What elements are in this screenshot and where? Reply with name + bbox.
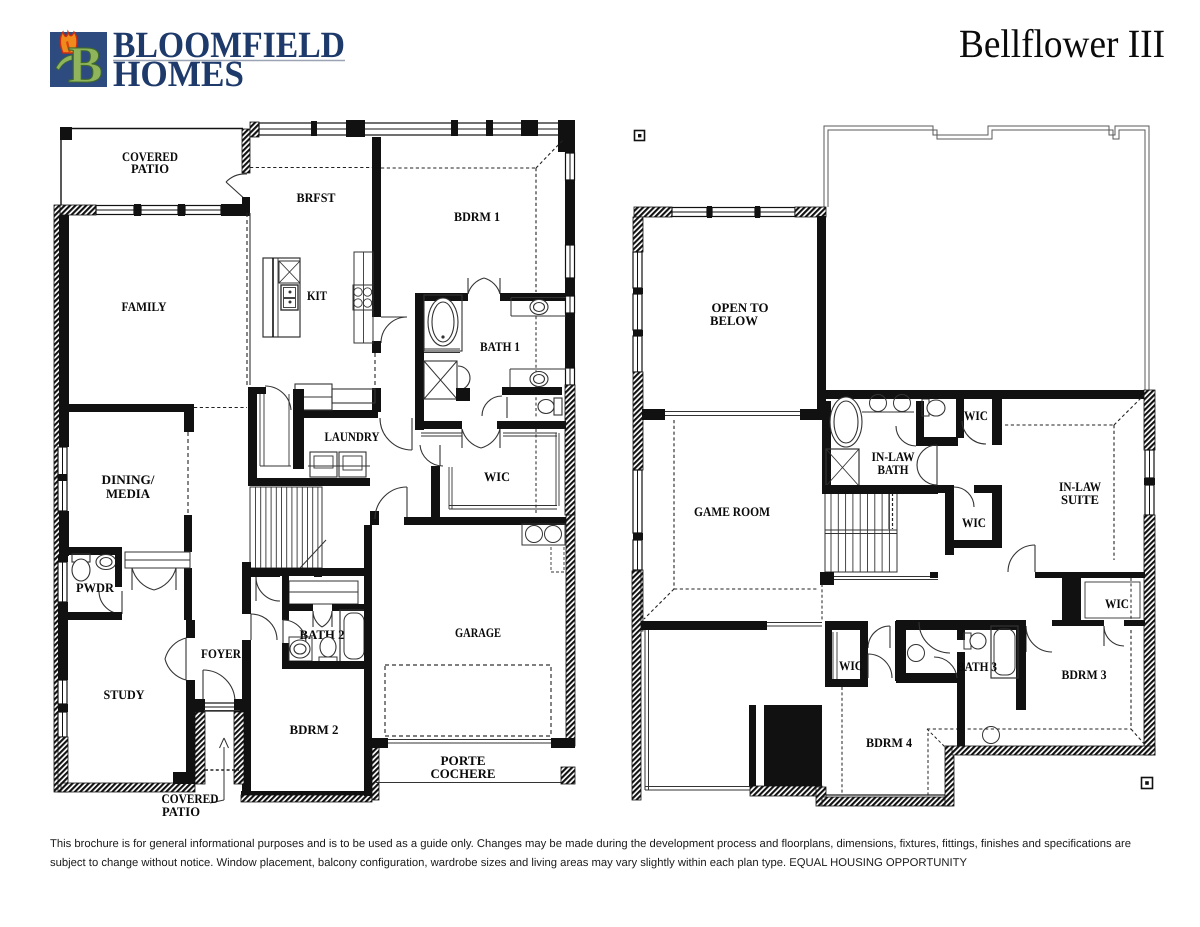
- svg-text:GARAGE: GARAGE: [455, 625, 501, 640]
- svg-text:BELOW: BELOW: [710, 313, 758, 328]
- svg-text:DINING/: DINING/: [102, 472, 155, 487]
- svg-text:subject to change without noti: subject to change without notice. Window…: [50, 857, 967, 869]
- svg-text:BATH 3: BATH 3: [957, 659, 997, 674]
- svg-text:BRFST: BRFST: [297, 190, 336, 205]
- svg-text:PWDR: PWDR: [76, 580, 115, 595]
- svg-text:WIC: WIC: [839, 658, 863, 673]
- svg-text:PATIO: PATIO: [131, 161, 169, 176]
- svg-text:SUITE: SUITE: [1061, 492, 1099, 507]
- svg-text:WIC: WIC: [962, 515, 986, 530]
- svg-text:BDRM 4: BDRM 4: [866, 735, 912, 750]
- svg-text:FAMILY: FAMILY: [122, 299, 168, 314]
- svg-text:This brochure is for general i: This brochure is for general information…: [50, 838, 1131, 850]
- svg-text:STUDY: STUDY: [104, 687, 146, 702]
- svg-text:HOMES: HOMES: [113, 54, 244, 95]
- svg-text:LAUNDRY: LAUNDRY: [325, 429, 381, 444]
- svg-text:COCHERE: COCHERE: [431, 766, 496, 781]
- svg-text:WIC: WIC: [1105, 596, 1129, 611]
- svg-text:BATH 1: BATH 1: [480, 339, 520, 354]
- svg-text:B: B: [68, 37, 103, 94]
- svg-text:BDRM 1: BDRM 1: [454, 209, 500, 224]
- svg-text:MEDIA: MEDIA: [106, 486, 151, 501]
- svg-text:GAME ROOM: GAME ROOM: [694, 504, 770, 519]
- svg-text:WIC: WIC: [484, 469, 510, 484]
- svg-text:FOYER: FOYER: [201, 646, 242, 661]
- svg-text:WIC: WIC: [964, 408, 988, 423]
- svg-text:PATIO: PATIO: [162, 804, 200, 819]
- svg-text:BDRM 2: BDRM 2: [290, 722, 339, 737]
- svg-text:Bellflower III: Bellflower III: [959, 21, 1165, 66]
- svg-text:BATH: BATH: [878, 462, 909, 477]
- svg-text:KIT: KIT: [307, 288, 327, 303]
- svg-text:BDRM 3: BDRM 3: [1062, 667, 1107, 682]
